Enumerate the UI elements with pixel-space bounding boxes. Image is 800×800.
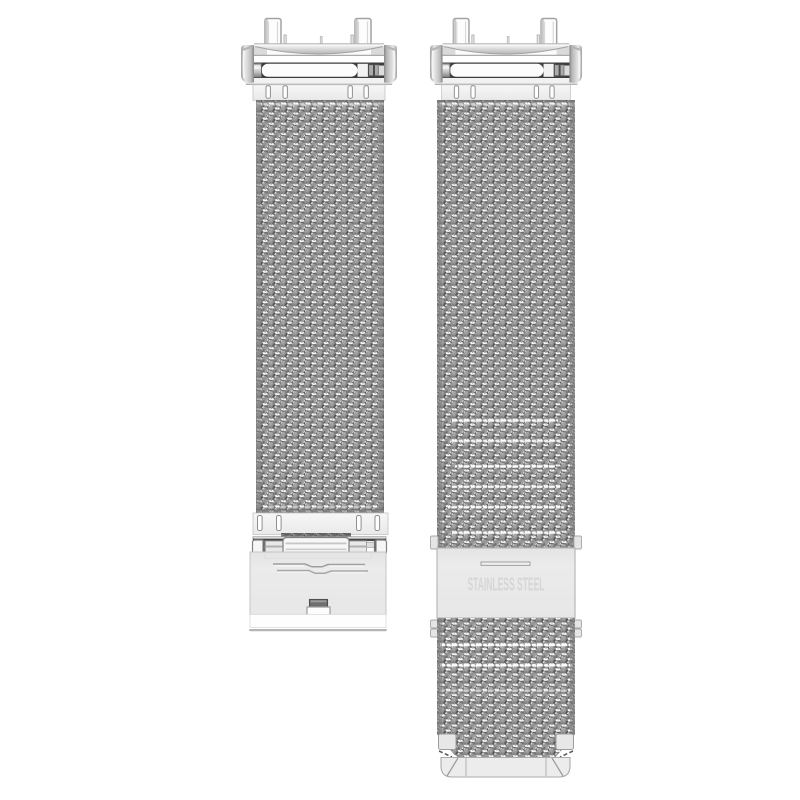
svg-text:STAINLESS STEEL: STAINLESS STEEL <box>468 574 545 595</box>
